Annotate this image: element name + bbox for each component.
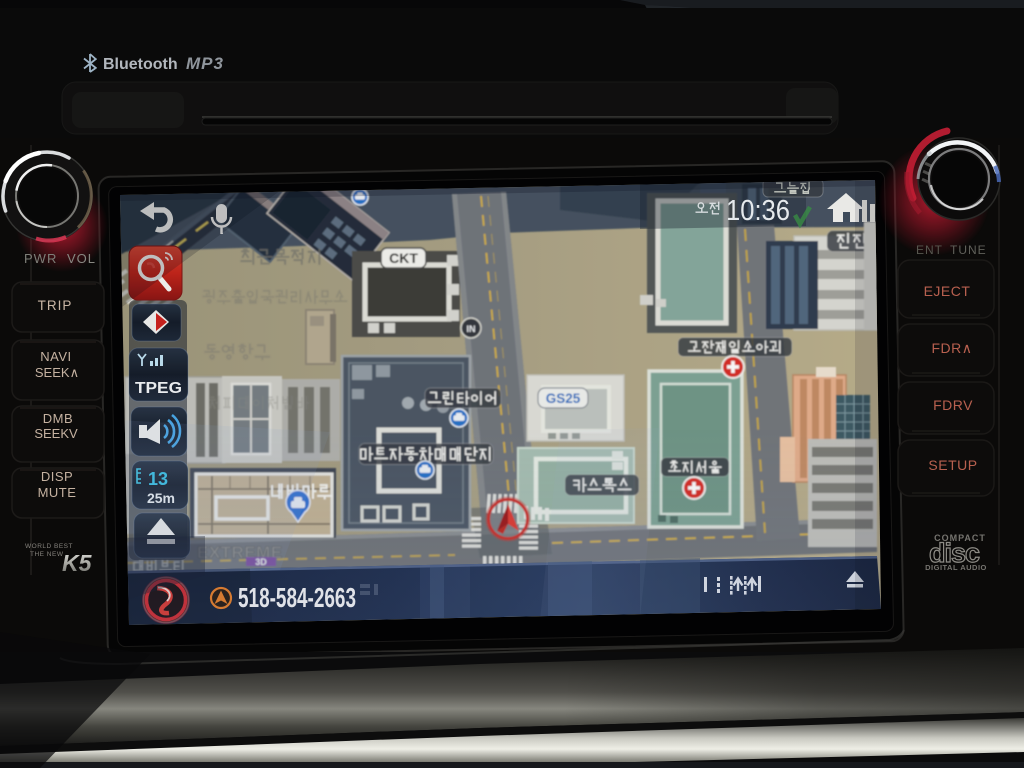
svg-text:THE NEW: THE NEW <box>30 551 64 558</box>
svg-text:NAVI: NAVI <box>40 349 71 364</box>
svg-text:FDRV: FDRV <box>933 397 973 413</box>
svg-text:TRIP: TRIP <box>38 298 73 313</box>
svg-text:EJECT: EJECT <box>924 283 971 299</box>
svg-text:DIGITAL AUDIO: DIGITAL AUDIO <box>925 563 987 572</box>
svg-text:FDR∧: FDR∧ <box>931 340 972 356</box>
svg-text:WORLD BEST: WORLD BEST <box>25 543 73 550</box>
svg-text:ENT: ENT <box>916 243 943 257</box>
svg-text:DISP: DISP <box>41 469 73 484</box>
svg-text:K5: K5 <box>62 550 93 576</box>
svg-text:SEEK∧: SEEK∧ <box>35 365 79 380</box>
svg-text:Bluetooth: Bluetooth <box>103 56 178 73</box>
svg-text:MUTE: MUTE <box>38 485 77 500</box>
svg-text:VOL: VOL <box>67 251 96 266</box>
svg-text:MP3: MP3 <box>186 54 224 73</box>
svg-text:SEEKV: SEEKV <box>34 426 78 441</box>
svg-text:DMB: DMB <box>43 411 73 426</box>
svg-text:TUNE: TUNE <box>950 243 987 257</box>
svg-text:PWR: PWR <box>24 251 57 266</box>
svg-text:SETUP: SETUP <box>928 457 977 473</box>
